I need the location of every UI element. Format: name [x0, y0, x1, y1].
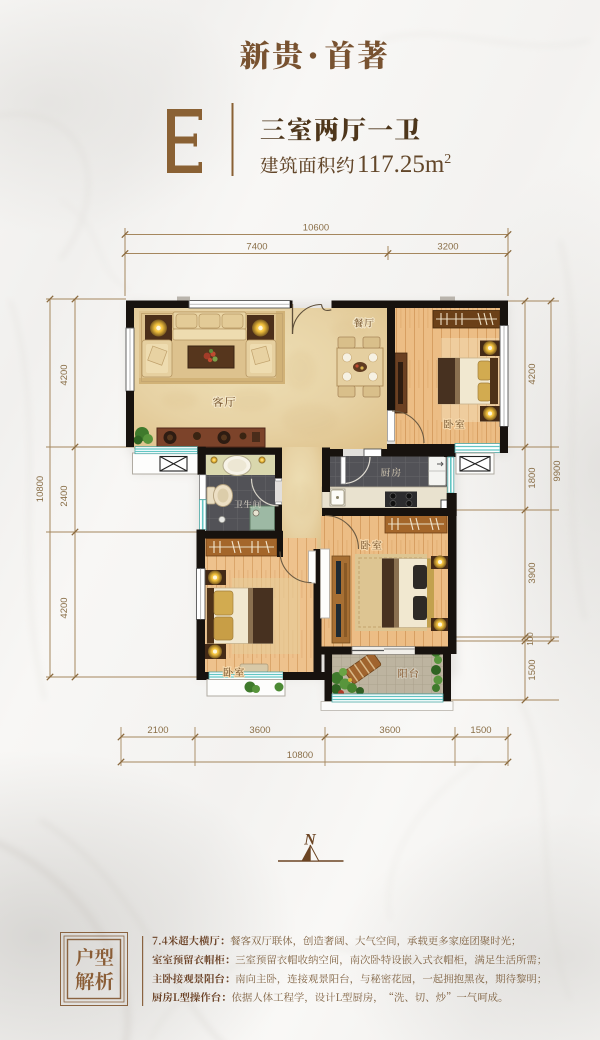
- svg-text:1500: 1500: [527, 659, 538, 680]
- svg-text:3600: 3600: [379, 725, 400, 736]
- svg-text:4200: 4200: [59, 597, 70, 618]
- svg-text:3600: 3600: [249, 725, 270, 736]
- svg-text:3200: 3200: [437, 242, 458, 253]
- svg-text:117.25m2: 117.25m2: [357, 151, 451, 178]
- svg-text:3900: 3900: [527, 562, 538, 583]
- svg-text:2400: 2400: [59, 485, 70, 506]
- svg-text:9900: 9900: [552, 460, 563, 481]
- svg-text:1500: 1500: [470, 725, 491, 736]
- svg-text:7400: 7400: [246, 242, 267, 253]
- svg-text:10600: 10600: [303, 223, 329, 234]
- svg-text:4200: 4200: [59, 364, 70, 385]
- svg-text:10800: 10800: [287, 750, 313, 761]
- svg-text:4200: 4200: [527, 363, 538, 384]
- svg-text:2100: 2100: [147, 725, 168, 736]
- svg-text:10800: 10800: [35, 476, 46, 502]
- svg-text:100: 100: [526, 632, 535, 646]
- svg-text:1800: 1800: [527, 467, 538, 488]
